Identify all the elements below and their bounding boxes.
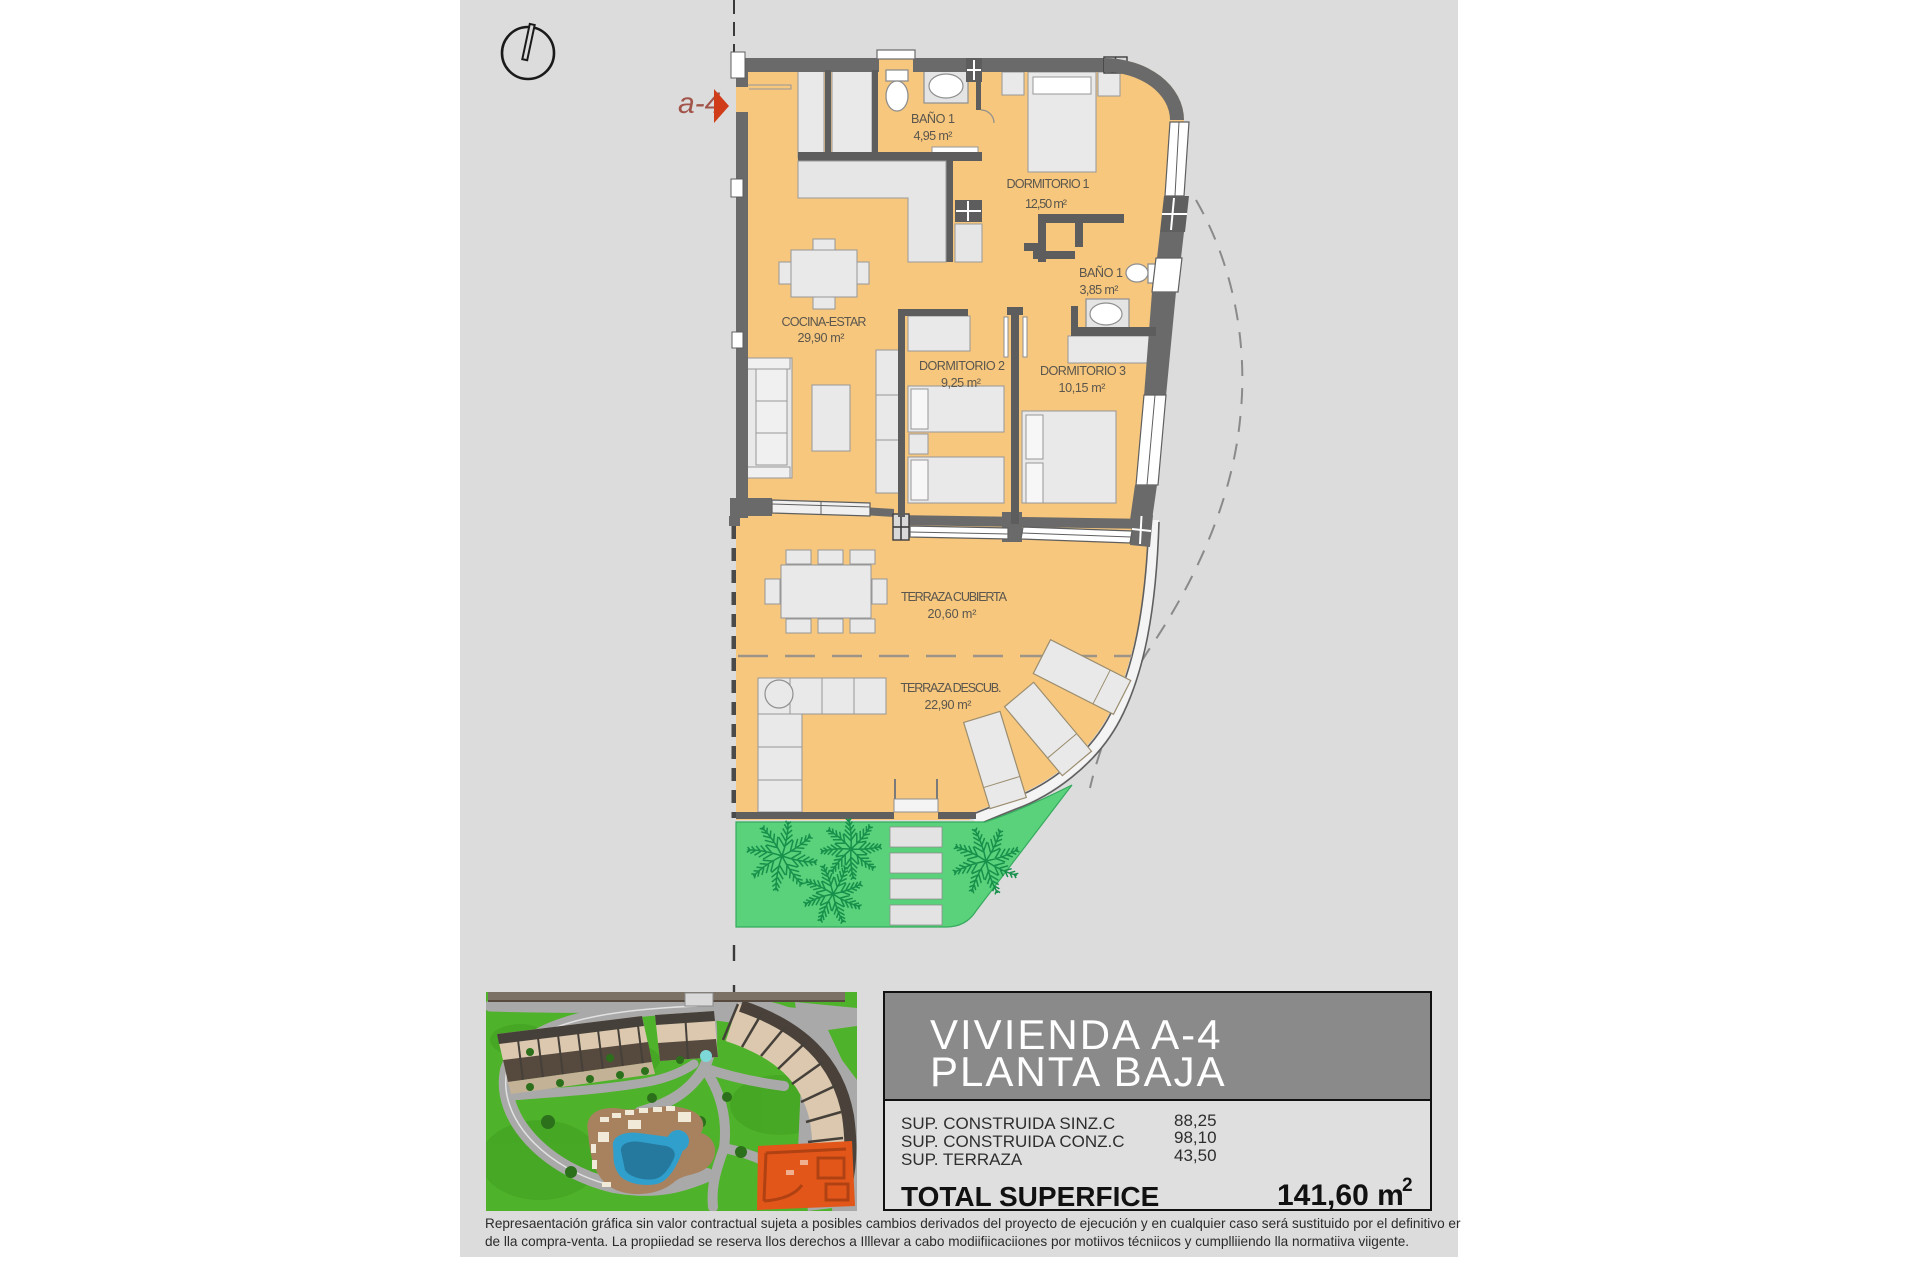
svg-text:12,50 m²: 12,50 m² <box>1025 197 1067 211</box>
svg-text:SUP. CONSTRUIDA SINZ.C: SUP. CONSTRUIDA SINZ.C <box>901 1114 1115 1133</box>
svg-text:SUP. TERRAZA: SUP. TERRAZA <box>901 1150 1023 1169</box>
svg-text:10,15 m²: 10,15 m² <box>1059 381 1106 395</box>
svg-text:Represaentación gráfica sin va: Represaentación gráfica sin valor contra… <box>485 1216 1461 1231</box>
svg-text:29,90 m²: 29,90 m² <box>798 331 845 345</box>
svg-text:de lla compra-venta. La propii: de lla compra-venta. La propiiedad se re… <box>485 1234 1409 1249</box>
svg-text:BAÑO 1: BAÑO 1 <box>1079 266 1123 280</box>
svg-text:COCINA-ESTAR: COCINA-ESTAR <box>782 315 867 329</box>
svg-text:BAÑO 1: BAÑO 1 <box>911 112 955 126</box>
svg-text:PLANTA BAJA: PLANTA BAJA <box>930 1048 1227 1095</box>
svg-text:98,10: 98,10 <box>1174 1128 1217 1147</box>
svg-text:43,50: 43,50 <box>1174 1146 1217 1165</box>
svg-text:3,85 m²: 3,85 m² <box>1080 283 1119 297</box>
svg-text:141,60 m: 141,60 m <box>1277 1179 1404 1212</box>
svg-text:4,95 m²: 4,95 m² <box>914 129 953 143</box>
svg-text:DORMITORIO 3: DORMITORIO 3 <box>1040 364 1126 378</box>
svg-text:20,60 m²: 20,60 m² <box>928 607 977 621</box>
svg-text:TERRAZA DESCUB.: TERRAZA DESCUB. <box>901 681 1002 695</box>
svg-text:DORMITORIO 2: DORMITORIO 2 <box>919 359 1005 373</box>
svg-text:2: 2 <box>1402 1175 1413 1196</box>
svg-text:DORMITORIO 1: DORMITORIO 1 <box>1007 177 1090 191</box>
svg-text:22,90 m²: 22,90 m² <box>925 698 972 712</box>
svg-text:SUP. CONSTRUIDA CONZ.C: SUP. CONSTRUIDA CONZ.C <box>901 1132 1125 1151</box>
svg-text:9,25 m²: 9,25 m² <box>941 376 981 390</box>
svg-text:TERRAZA CUBIERTA: TERRAZA CUBIERTA <box>901 590 1008 604</box>
svg-text:TOTAL SUPERFICE: TOTAL SUPERFICE <box>901 1181 1159 1212</box>
